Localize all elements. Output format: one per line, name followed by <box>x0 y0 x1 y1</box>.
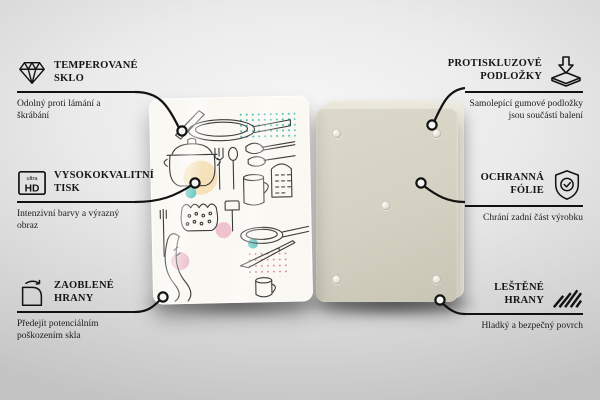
ultra-hd-icon: ultra HD <box>17 169 47 197</box>
feature-title: OCHRANNÁ FÓLIE <box>465 172 544 197</box>
ultra-hd-icon-big-text: HD <box>25 183 40 194</box>
kitchen-doodle-print <box>149 95 313 304</box>
feature-subtitle: Odolný proti lámání a škrábání <box>17 93 135 122</box>
anti-slip-pads-icon <box>549 54 583 88</box>
feature-polished-edges: LEŠTĚNÉ HRANY Hladký a bezpečný povrch <box>465 280 583 332</box>
feature-title: ZAOBLENÉ HRANY <box>54 280 135 305</box>
feature-subtitle: Hladký a bezpečný povrch <box>465 315 583 332</box>
feature-subtitle: Intenzivní barvy a výrazný obraz <box>17 203 135 232</box>
polished-edges-icon <box>551 280 583 310</box>
feature-subtitle: Chrání zadní část výrobku <box>465 207 583 224</box>
shield-check-icon <box>551 168 583 202</box>
rubber-pad <box>432 129 441 138</box>
feature-anti-slip-pads: PROTISKLUZOVÉ PODLOŽKY Samolepící gumové… <box>465 54 583 122</box>
feature-title: VYSOKOKVALITNÍ TISK <box>54 170 154 195</box>
rubber-pad <box>432 275 441 284</box>
diamond-icon <box>17 59 47 87</box>
feature-tempered-glass: TEMPEROVANÉ SKLO Odolný proti lámání a š… <box>17 58 135 122</box>
rubber-pad <box>332 129 341 138</box>
back-panel <box>316 107 458 302</box>
feature-title: LEŠTĚNÉ HRANY <box>465 282 544 307</box>
feature-subtitle: Samolepící gumové podložky jsou součástí… <box>465 93 583 122</box>
rubber-pad <box>381 201 390 210</box>
feature-title: PROTISKLUZOVÉ PODLOŽKY <box>448 58 542 83</box>
feature-rounded-edges: ZAOBLENÉ HRANY Předejít potenciálním poš… <box>17 278 135 342</box>
feature-protective-film: OCHRANNÁ FÓLIE Chrání zadní část výrobku <box>465 168 583 224</box>
feature-title: TEMPEROVANÉ SKLO <box>54 60 138 85</box>
product-feature-infographic: TEMPEROVANÉ SKLO Odolný proti lámání a š… <box>0 0 600 400</box>
ultra-hd-icon-small-text: ultra <box>27 176 39 182</box>
rounded-corner-icon <box>17 278 47 308</box>
feature-subtitle: Předejít potenciálním poškozením skla <box>17 313 135 342</box>
rubber-pad <box>332 275 341 284</box>
front-panel <box>149 95 313 304</box>
feature-high-quality-print: ultra HD VYSOKOKVALITNÍ TISK Intenzivní … <box>17 168 135 232</box>
